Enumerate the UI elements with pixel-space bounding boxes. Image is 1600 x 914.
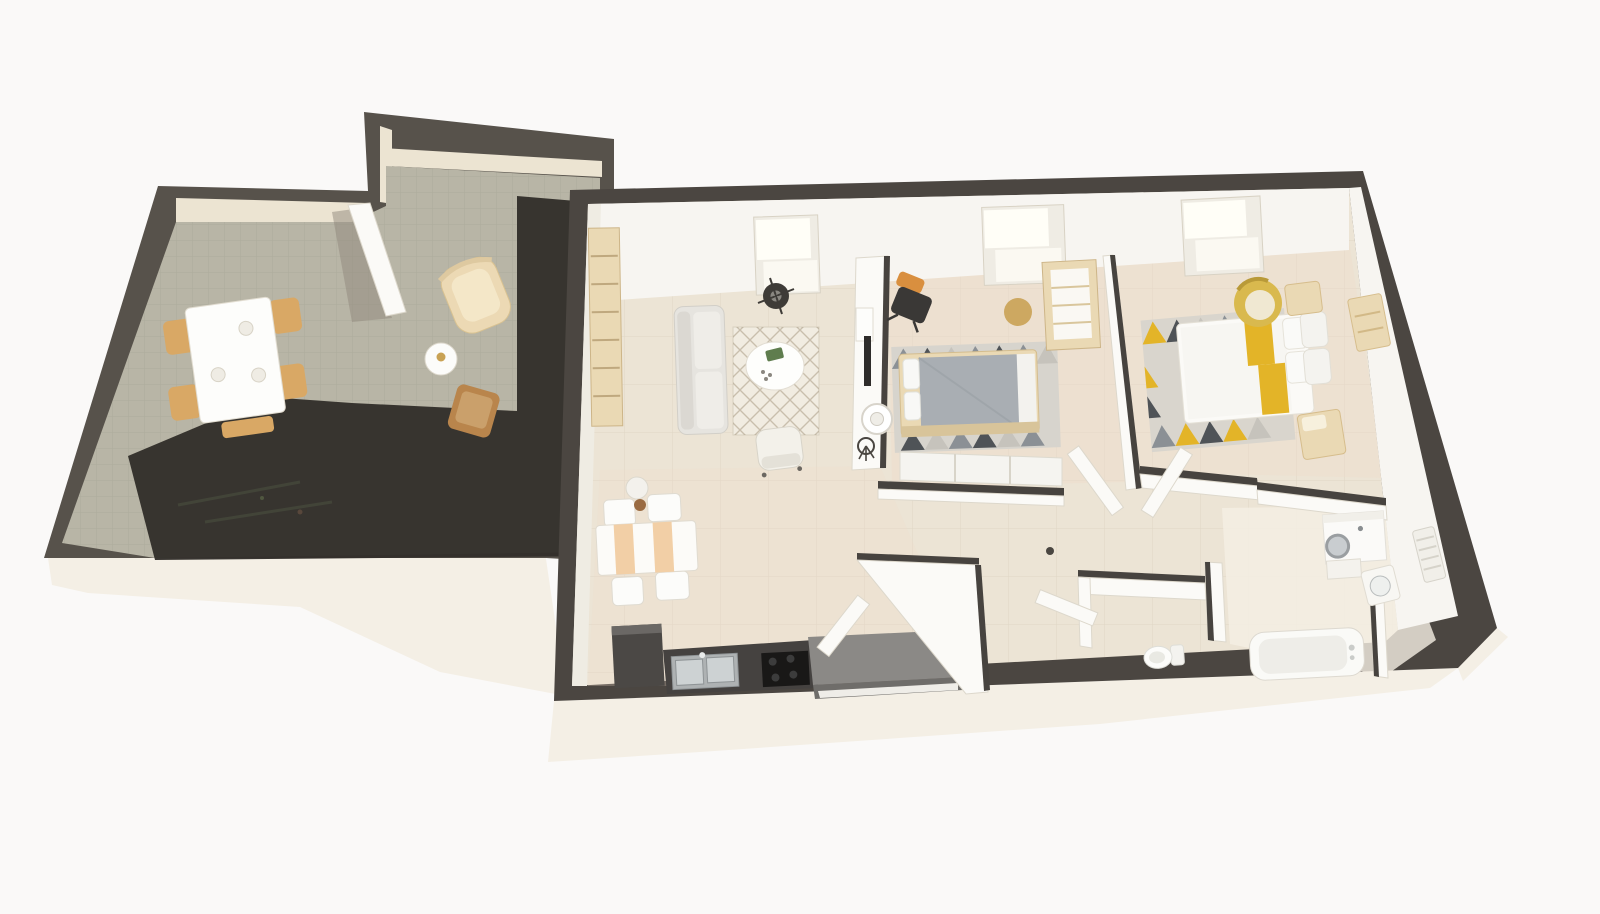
door-handle-dot bbox=[1046, 547, 1054, 555]
dining-table bbox=[596, 520, 698, 575]
dining-chair bbox=[647, 493, 681, 522]
television bbox=[864, 336, 871, 386]
tall-dark-cabinet bbox=[611, 624, 664, 689]
papasan-chair-gold bbox=[1234, 279, 1282, 327]
building-terrace-annex bbox=[44, 112, 614, 696]
pillow bbox=[1303, 348, 1332, 385]
sofa bbox=[674, 305, 728, 435]
gold-tray bbox=[437, 353, 446, 362]
bathtub bbox=[1249, 627, 1365, 681]
bedside-cube bbox=[1284, 281, 1323, 316]
pendant-lamp bbox=[862, 404, 892, 434]
floorplan-render bbox=[0, 0, 1600, 914]
washing-machine bbox=[1322, 511, 1386, 564]
roof-window-living bbox=[754, 215, 821, 295]
building-main-apartment bbox=[548, 171, 1508, 762]
round-coffee-table bbox=[746, 342, 804, 390]
floorplan-viewport[interactable] bbox=[0, 0, 1600, 914]
sliding-wardrobe bbox=[900, 452, 1062, 486]
peach-table-runner bbox=[614, 524, 636, 575]
bedside-cube bbox=[1297, 409, 1347, 460]
bathroom-cabinet bbox=[1326, 559, 1361, 579]
annex-facade bbox=[48, 552, 566, 696]
dining-chair bbox=[611, 576, 643, 606]
cooktop bbox=[761, 651, 810, 687]
round-gold-rug bbox=[1004, 298, 1032, 326]
pillow bbox=[903, 359, 920, 390]
outdoor-dining-table bbox=[185, 297, 286, 424]
pillow bbox=[904, 392, 921, 421]
desk-shelf-unit bbox=[1042, 260, 1101, 351]
bookshelf bbox=[588, 228, 622, 427]
double-bed-gray-duvet bbox=[899, 350, 1040, 438]
yellow-runner bbox=[1258, 363, 1289, 415]
double-sink bbox=[671, 650, 739, 689]
double-bed-yellow-runner bbox=[1176, 311, 1334, 424]
dining-chair bbox=[655, 571, 689, 601]
round-side-table bbox=[425, 343, 457, 375]
peach-table-runner bbox=[653, 522, 675, 573]
tv-partition-wall bbox=[852, 256, 892, 470]
roof-window-bedroom2 bbox=[1181, 196, 1264, 276]
dining-chair bbox=[603, 499, 635, 528]
pillow bbox=[1300, 311, 1329, 348]
